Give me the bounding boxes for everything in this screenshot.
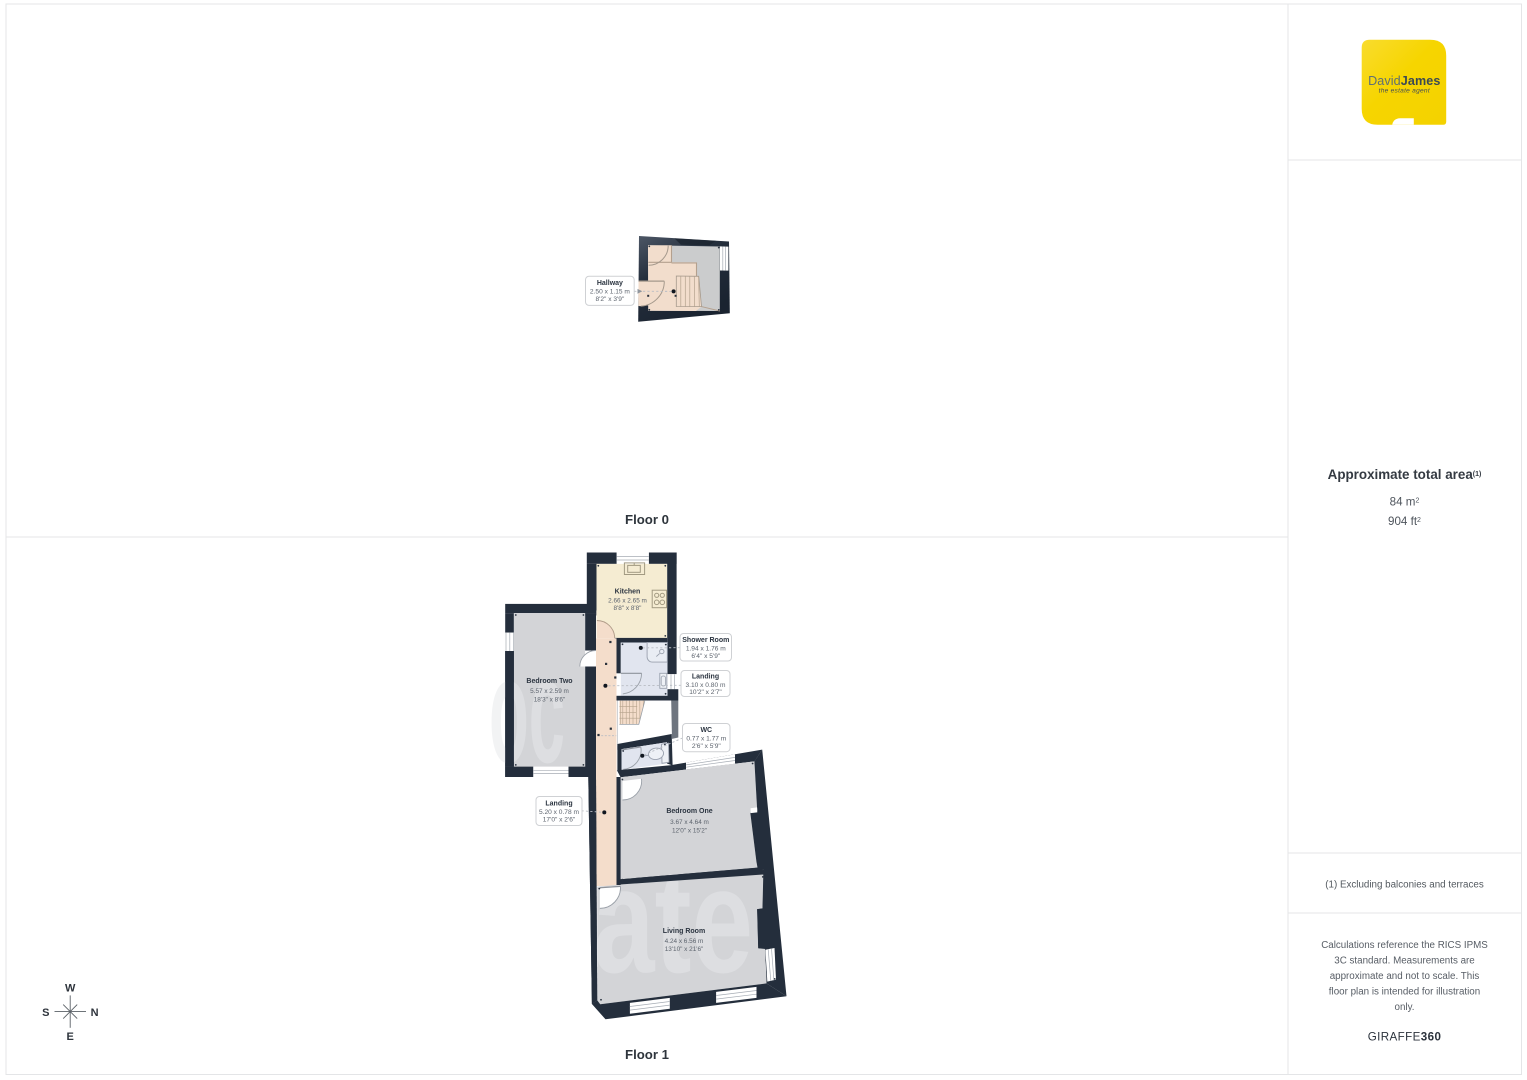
svg-text:2.50 x 1.15 m: 2.50 x 1.15 m — [590, 289, 630, 296]
svg-text:Bedroom Two: Bedroom Two — [526, 678, 572, 685]
svg-text:GIRAFFE360: GIRAFFE360 — [1368, 1031, 1442, 1044]
svg-text:Living Room: Living Room — [663, 928, 705, 935]
svg-text:Landing: Landing — [692, 674, 719, 681]
svg-text:Floor 1: Floor 1 — [625, 1047, 669, 1062]
svg-text:904 ft2: 904 ft2 — [1388, 515, 1421, 528]
svg-text:10'2" x 2'7": 10'2" x 2'7" — [689, 689, 722, 696]
svg-text:E: E — [67, 1031, 74, 1043]
svg-text:the estate agent: the estate agent — [1379, 88, 1431, 95]
svg-text:3C standard. Measurements are: 3C standard. Measurements are — [1334, 956, 1475, 967]
svg-text:12'0" x 15'2": 12'0" x 15'2" — [672, 827, 707, 834]
svg-text:Bedroom One: Bedroom One — [666, 808, 712, 815]
svg-text:5.20 x 0.78 m: 5.20 x 0.78 m — [539, 809, 579, 816]
svg-text:8'2" x 3'9": 8'2" x 3'9" — [595, 296, 624, 303]
svg-text:Floor 0: Floor 0 — [625, 512, 669, 527]
svg-text:2.66 x 2.65 m: 2.66 x 2.65 m — [608, 597, 647, 604]
svg-text:3.10 x 0.80 m: 3.10 x 0.80 m — [686, 682, 726, 689]
svg-text:17'0" x 2'6": 17'0" x 2'6" — [543, 817, 576, 824]
svg-text:4.24 x 6.56 m: 4.24 x 6.56 m — [665, 938, 704, 945]
svg-text:84 m2: 84 m2 — [1390, 496, 1420, 509]
svg-text:approximate and not to scale.: approximate and not to scale. This — [1330, 971, 1480, 982]
svg-text:only.: only. — [1395, 1002, 1415, 1013]
svg-text:floor plan is intended for ill: floor plan is intended for illustration — [1329, 987, 1480, 998]
svg-text:Shower Room: Shower Room — [682, 637, 729, 644]
svg-text:2'6" x 5'9": 2'6" x 5'9" — [692, 743, 721, 750]
svg-text:Landing: Landing — [545, 800, 572, 807]
svg-text:1.94 x 1.76 m: 1.94 x 1.76 m — [686, 645, 726, 652]
svg-text:Kitchen: Kitchen — [615, 588, 641, 595]
svg-text:5.57 x 2.59 m: 5.57 x 2.59 m — [530, 688, 569, 695]
svg-text:(1) Excluding balconies and te: (1) Excluding balconies and terraces — [1325, 880, 1484, 891]
svg-text:DavidJames: DavidJames — [1368, 74, 1440, 88]
svg-text:0.77 x 1.77 m: 0.77 x 1.77 m — [686, 735, 726, 742]
svg-text:Hallway: Hallway — [597, 280, 623, 287]
svg-text:S: S — [42, 1007, 49, 1019]
svg-text:18'3" x 8'6": 18'3" x 8'6" — [534, 696, 566, 703]
svg-text:3.67 x 4.64 m: 3.67 x 4.64 m — [670, 819, 709, 826]
svg-text:8'8" x 8'8": 8'8" x 8'8" — [614, 605, 642, 612]
svg-text:W: W — [65, 983, 76, 995]
svg-text:6'4" x 5'9": 6'4" x 5'9" — [691, 653, 720, 660]
svg-text:Calculations reference the RIC: Calculations reference the RICS IPMS — [1321, 940, 1488, 951]
svg-text:13'10" x 21'6": 13'10" x 21'6" — [665, 946, 704, 953]
svg-text:Approximate total area(1): Approximate total area(1) — [1328, 467, 1482, 482]
svg-text:WC: WC — [700, 727, 712, 734]
svg-text:N: N — [91, 1007, 99, 1019]
